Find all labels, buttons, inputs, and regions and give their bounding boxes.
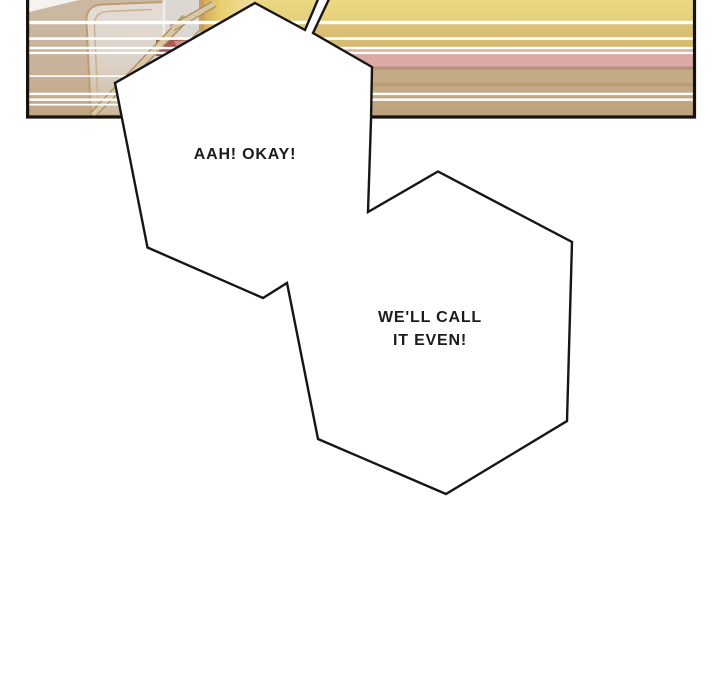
comic-page: AAH! OKAY! WE'LL CALL IT EVEN! xyxy=(0,0,720,700)
speech-bubble-2-line2: IT EVEN! xyxy=(352,329,508,352)
speech-bubble-1-text: AAH! OKAY! xyxy=(175,143,315,166)
speech-bubble-2-line1: WE'LL CALL xyxy=(352,306,508,329)
speech-bubble-2-text: WE'LL CALL IT EVEN! xyxy=(352,306,508,352)
